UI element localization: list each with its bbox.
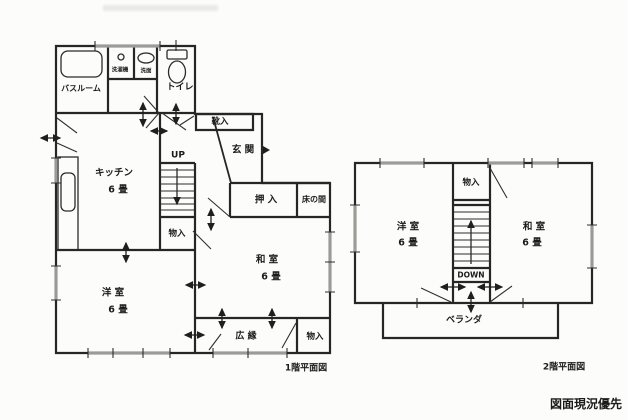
bathtub-fixture — [61, 51, 102, 77]
label-washstand: 洗面 — [140, 69, 151, 75]
label-closet-2f: 物入 — [462, 179, 479, 188]
label-balcony: ベランダ — [446, 317, 482, 326]
room-size-western-2f: 6 畳 — [398, 238, 417, 248]
label-tokonoma: 床の間 — [302, 196, 326, 204]
stairs-1f — [160, 168, 195, 210]
room-label-kitchen: キッチン — [95, 168, 133, 178]
toilet-fixture — [167, 50, 187, 83]
floorplan-canvas: バスルーム 洗濯機 洗面 トイレ 靴入 玄 関 キッチン 6 畳 UP 物入 押… — [0, 0, 628, 420]
plan-linework — [0, 0, 628, 420]
kitchen-sink-fixture — [61, 173, 75, 211]
label-closet-by-stairs: 物入 — [168, 230, 185, 239]
room-size-kitchen: 6 畳 — [108, 185, 127, 195]
stairs-2f — [453, 212, 490, 264]
label-shoe-cabinet: 靴入 — [211, 118, 228, 127]
washbasin-fixture — [138, 53, 154, 63]
room-label-bathroom: バスルーム — [61, 85, 101, 93]
label-stairs-down: DOWN — [457, 271, 484, 279]
room-size-japanese-1f: 6 畳 — [261, 272, 280, 282]
room-label-western-2f: 洋 室 — [397, 222, 419, 232]
label-hiroen: 広 縁 — [235, 333, 256, 342]
label-oshiire: 押 入 — [255, 195, 277, 205]
door-arrows-1f — [41, 103, 272, 335]
room-label-toilet: トイレ — [166, 84, 193, 93]
washing-machine-fixture — [118, 54, 124, 60]
caption-floor2: 2階平面図 — [543, 364, 585, 373]
room-label-western-1f: 洋 室 — [102, 288, 124, 298]
room-label-japanese-2f: 和 室 — [523, 222, 545, 232]
entrance-marker-icon — [263, 146, 270, 154]
room-label-entrance: 玄 関 — [232, 145, 254, 155]
caption-floor1: 1階平面図 — [285, 365, 327, 374]
door-swings-1f — [57, 96, 296, 350]
label-closet-southeast: 物入 — [306, 333, 323, 342]
label-washing-machine: 洗濯機 — [112, 68, 129, 74]
label-stairs-up: UP — [171, 152, 185, 161]
room-label-japanese-1f: 和 室 — [256, 255, 278, 265]
room-size-japanese-2f: 6 畳 — [522, 238, 541, 248]
room-size-western-1f: 6 畳 — [108, 305, 127, 315]
drawing-priority-note: 図面現況優先 — [550, 398, 622, 410]
